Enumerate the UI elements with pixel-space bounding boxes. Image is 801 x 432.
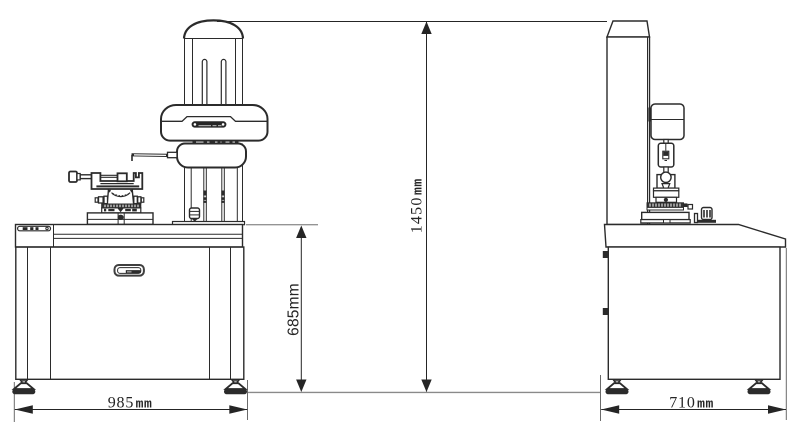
svg-text:1450mm: 1450mm: [409, 178, 426, 233]
svg-text:685mm: 685mm: [286, 283, 303, 336]
svg-text:710mm: 710mm: [669, 395, 714, 412]
svg-text:985mm: 985mm: [108, 395, 153, 412]
